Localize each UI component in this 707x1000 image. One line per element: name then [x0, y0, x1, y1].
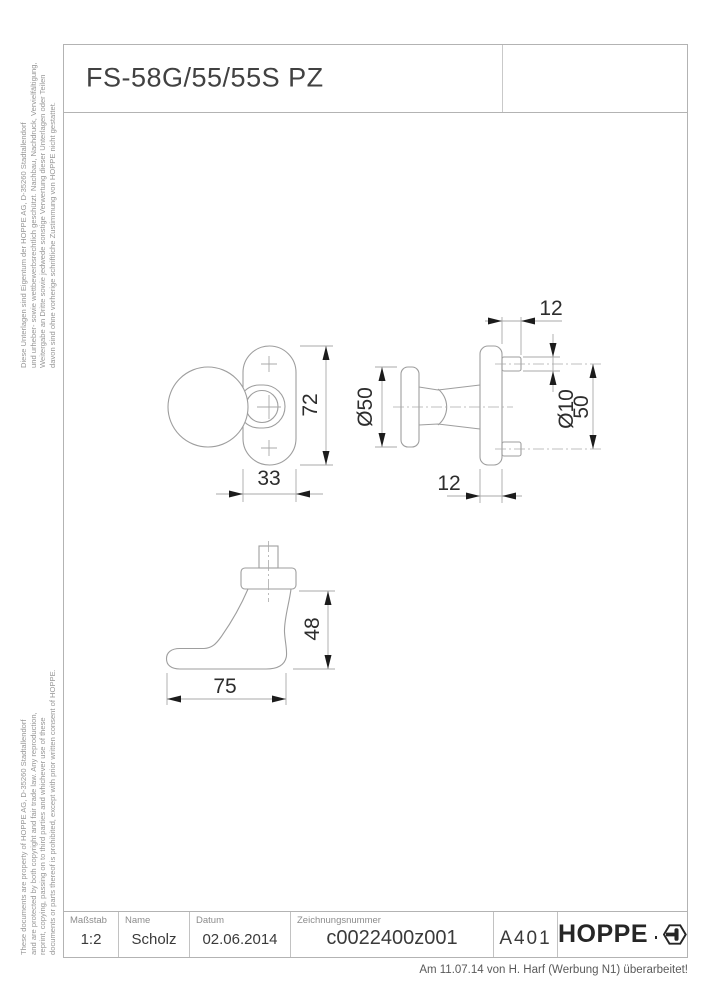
dim-lever-height: 48	[301, 617, 324, 640]
view-side: Ø50 12 12 Ø10 50	[354, 297, 602, 503]
format-cell: A401	[494, 912, 558, 957]
name-cell: Name Scholz	[119, 912, 190, 957]
scale-label: Maßstab	[70, 915, 107, 926]
name-value: Scholz	[119, 931, 189, 948]
center-marks	[257, 356, 281, 456]
dim-lever-length: 75	[213, 675, 236, 698]
dim-12-top-lines	[485, 317, 562, 355]
scale-cell: Maßstab 1:2	[64, 912, 119, 957]
dim-rose-depth: 12	[437, 472, 460, 495]
date-label: Datum	[196, 915, 224, 926]
view-front: 72 33	[168, 346, 333, 502]
drawing-frame: FS-58G/55/55S PZ 72 33	[63, 44, 688, 958]
title-side-box	[502, 45, 687, 112]
brand-cell: HOPPE	[558, 912, 687, 957]
hoppe-wordmark: HOPPE	[558, 920, 648, 949]
dim-knob-diameter: Ø50	[354, 387, 377, 427]
hoppe-hexagon-icon	[663, 921, 687, 948]
title-block: Maßstab 1:2 Name Scholz Datum 02.06.2014…	[64, 911, 687, 957]
drawing-sheet: Diese Unterlagen sind Eigentum der HOPPE…	[0, 0, 707, 1000]
dim-pin-spacing: 50	[570, 395, 593, 418]
knob-neck-inner	[246, 391, 278, 423]
revision-note: Am 11.07.14 von H. Harf (Werbung N1) übe…	[419, 964, 688, 976]
scale-value: 1:2	[64, 931, 118, 948]
date-cell: Datum 02.06.2014	[190, 912, 291, 957]
drawing-number-cell: Zeichnungsnummer c0022400z001	[291, 912, 494, 957]
drawing-number-label: Zeichnungsnummer	[297, 915, 381, 926]
registered-mark-icon	[655, 936, 657, 939]
drawing-views: 72 33 Ø50 12	[64, 112, 687, 911]
name-label: Name	[125, 915, 150, 926]
title-row: FS-58G/55/55S PZ	[64, 45, 687, 113]
drawing-number-value: c0022400z001	[291, 927, 493, 950]
view-lever: 48 75	[167, 541, 336, 705]
legal-note-english: These documents are property of HOPPE AG…	[19, 655, 57, 955]
lever-outline	[167, 589, 292, 669]
legal-note-german: Diese Unterlagen sind Eigentum der HOPPE…	[19, 38, 57, 368]
date-value: 02.06.2014	[190, 931, 290, 948]
dim-rose-height: 72	[299, 393, 322, 416]
dim-rose-width: 33	[257, 467, 280, 490]
format-value: A401	[494, 928, 557, 950]
dim-pin-length: 12	[539, 297, 562, 320]
knob-front-outline	[168, 367, 248, 447]
drawing-title: FS-58G/55/55S PZ	[86, 62, 324, 93]
